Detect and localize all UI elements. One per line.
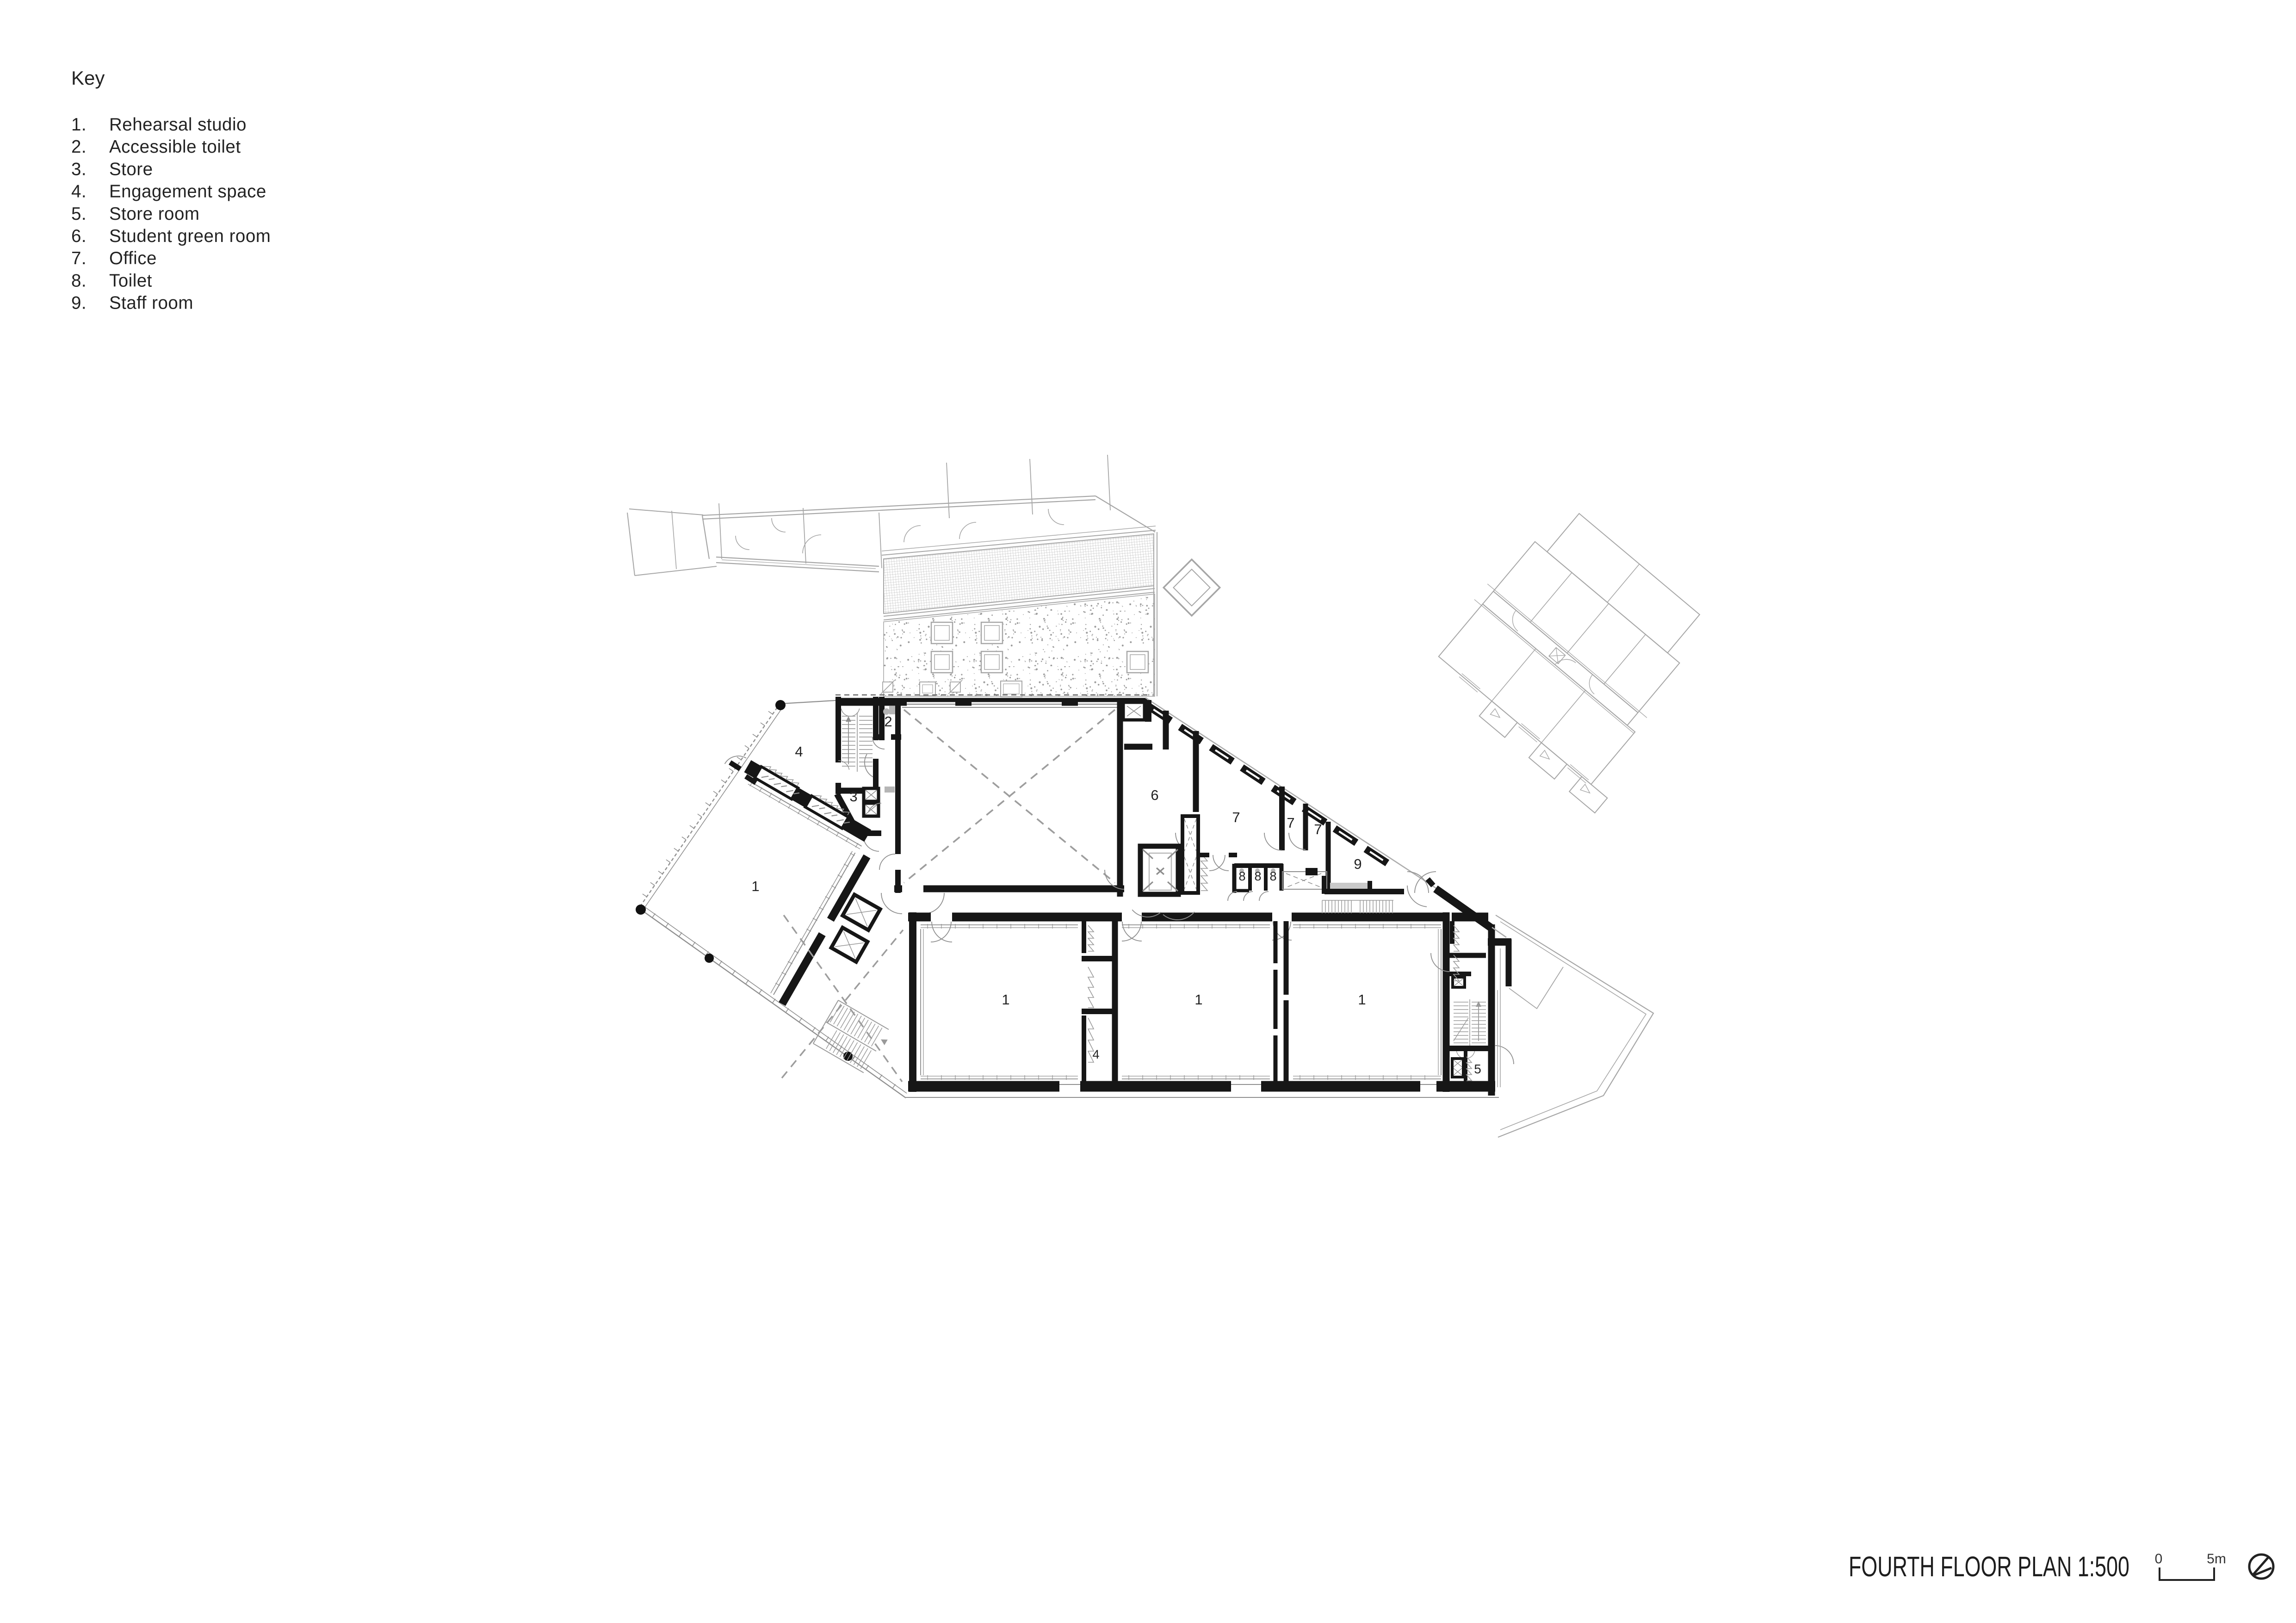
svg-text:8.: 8. [71, 271, 87, 291]
svg-text:Toilet: Toilet [109, 271, 152, 291]
svg-text:9: 9 [1354, 856, 1362, 872]
svg-text:4.: 4. [71, 182, 87, 202]
svg-text:1: 1 [1002, 991, 1009, 1008]
svg-text:Store room: Store room [109, 204, 199, 224]
svg-text:3.: 3. [71, 159, 87, 179]
svg-text:4: 4 [1092, 1047, 1099, 1061]
svg-text:1: 1 [1358, 991, 1366, 1008]
svg-text:6: 6 [1151, 787, 1158, 803]
svg-text:8: 8 [1269, 869, 1276, 883]
svg-text:1: 1 [1194, 991, 1202, 1008]
svg-text:Store: Store [109, 159, 153, 179]
svg-text:7: 7 [1287, 815, 1294, 831]
svg-text:9.: 9. [71, 293, 87, 313]
svg-text:2: 2 [884, 713, 892, 730]
svg-text:FOURTH FLOOR PLAN 1:500: FOURTH FLOOR PLAN 1:500 [1849, 1551, 2129, 1582]
svg-text:1: 1 [751, 878, 759, 894]
svg-text:7: 7 [1314, 821, 1322, 837]
svg-text:Office: Office [109, 248, 157, 268]
svg-text:1.: 1. [71, 115, 87, 135]
svg-text:5m: 5m [2207, 1551, 2226, 1567]
svg-text:2.: 2. [71, 137, 87, 157]
svg-text:8: 8 [1238, 869, 1245, 883]
svg-text:5: 5 [1474, 1062, 1481, 1076]
svg-text:7: 7 [1232, 809, 1240, 825]
svg-text:8: 8 [1254, 869, 1261, 883]
svg-text:Student green room: Student green room [109, 226, 271, 246]
svg-text:0: 0 [2155, 1551, 2163, 1567]
svg-text:Rehearsal studio: Rehearsal studio [109, 115, 247, 135]
svg-text:4: 4 [795, 743, 803, 760]
svg-text:Staff room: Staff room [109, 293, 193, 313]
svg-text:Key: Key [71, 67, 105, 89]
svg-text:Accessible toilet: Accessible toilet [109, 137, 241, 157]
svg-text:5.: 5. [71, 204, 87, 224]
svg-text:6.: 6. [71, 226, 87, 246]
svg-text:7.: 7. [71, 248, 87, 268]
svg-text:3: 3 [849, 788, 857, 805]
svg-text:Engagement space: Engagement space [109, 182, 266, 202]
